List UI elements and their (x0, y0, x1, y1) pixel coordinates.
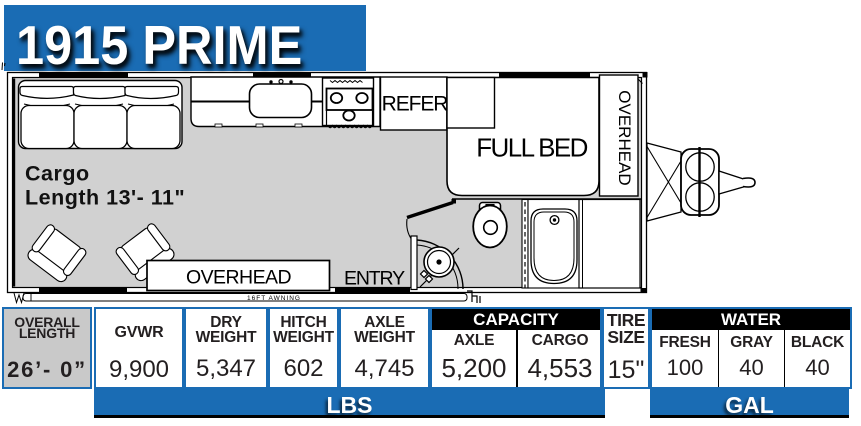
svg-text:Cargo: Cargo (25, 162, 90, 186)
svg-text:OVERHEAD: OVERHEAD (186, 267, 292, 289)
svg-text:Length 13'- 11": Length 13'- 11" (25, 186, 185, 210)
svg-text:ENTRY: ENTRY (344, 268, 405, 290)
svg-text:OVERHEAD: OVERHEAD (615, 90, 634, 185)
svg-text:16FT AWNING: 16FT AWNING (247, 295, 301, 302)
svg-text:REFER: REFER (382, 93, 449, 116)
svg-text:FULL BED: FULL BED (476, 133, 587, 163)
